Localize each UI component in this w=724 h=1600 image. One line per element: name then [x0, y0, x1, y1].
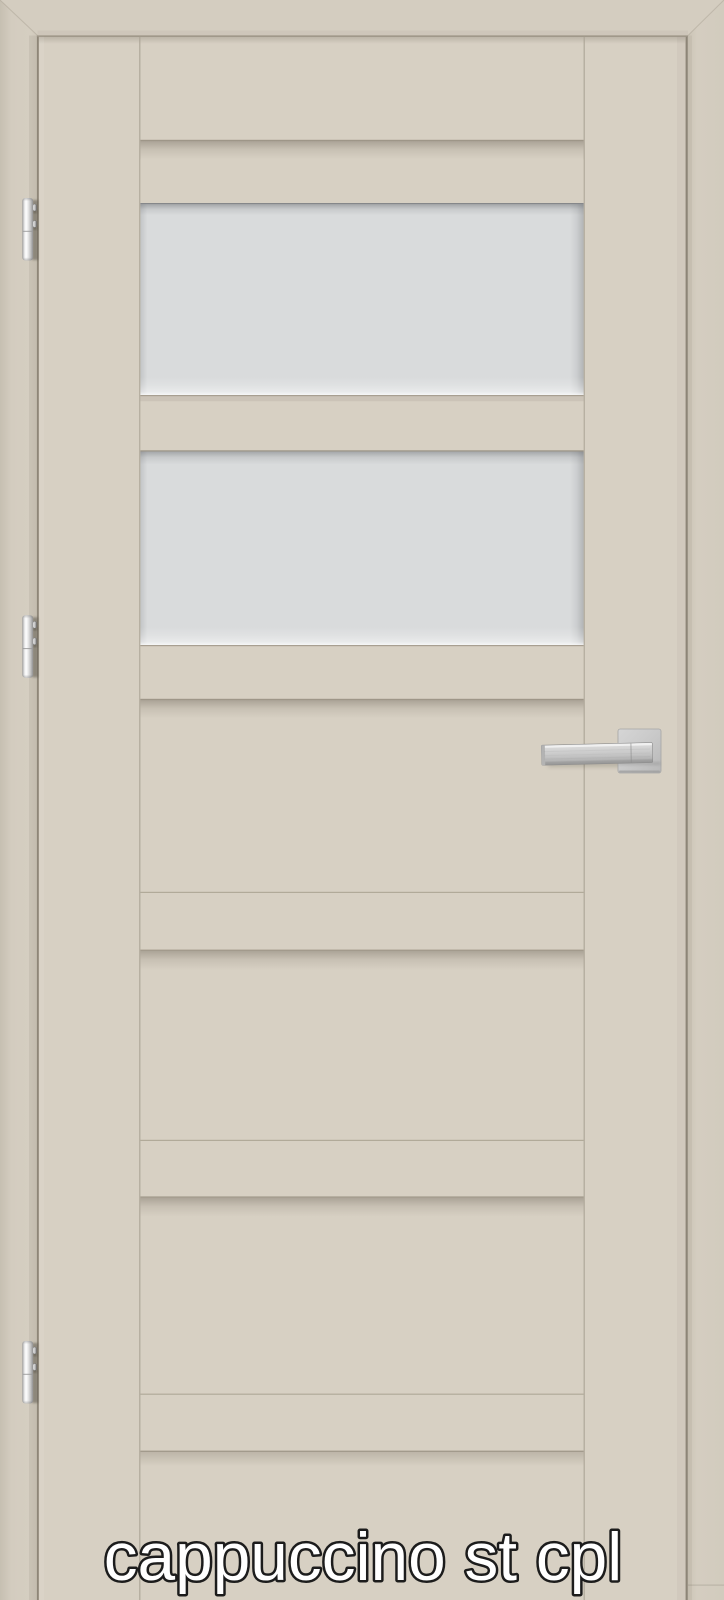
svg-text:cappuccino st cpl: cappuccino st cpl [104, 1520, 623, 1595]
